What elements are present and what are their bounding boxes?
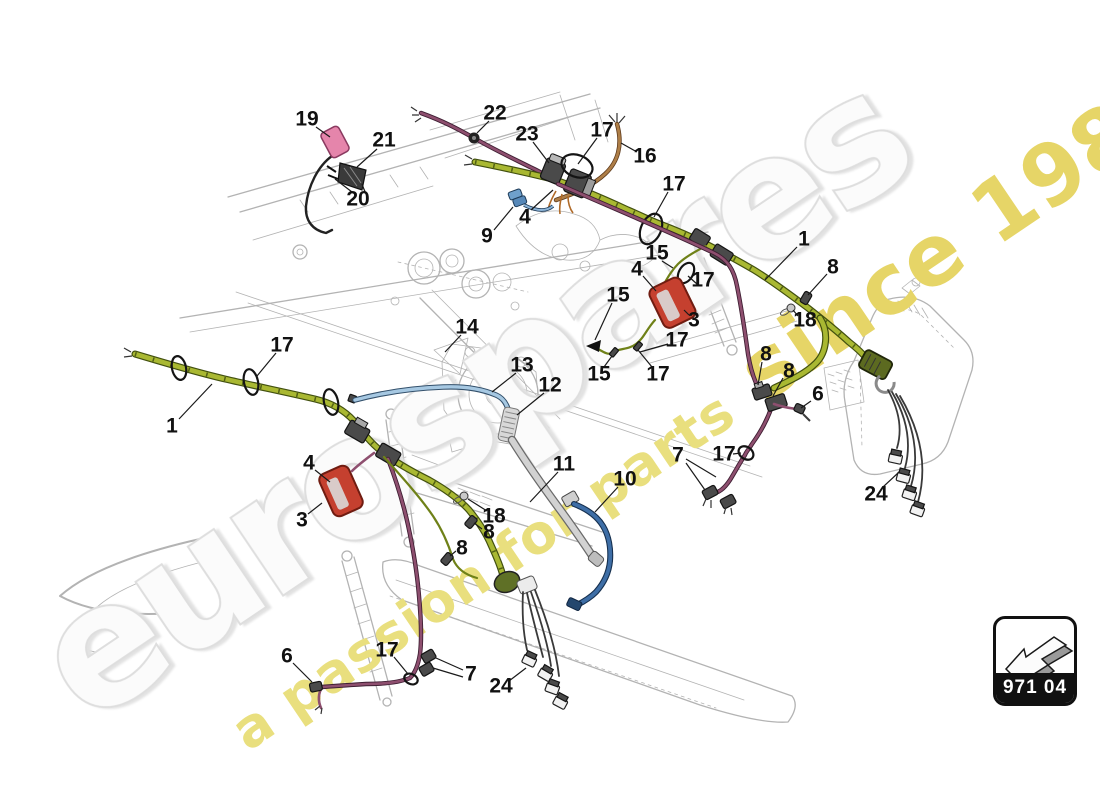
part-code-band: 971 04 <box>996 673 1074 703</box>
callout-15[interactable]: 15 <box>645 242 669 265</box>
callout-18[interactable]: 18 <box>793 309 817 332</box>
callout-17[interactable]: 17 <box>270 334 293 357</box>
callout-15[interactable]: 15 <box>606 284 630 307</box>
callout-8[interactable]: 8 <box>760 343 772 366</box>
callout-8[interactable]: 8 <box>483 521 495 544</box>
callout-19[interactable]: 19 <box>295 108 318 131</box>
callout-24[interactable]: 24 <box>864 483 888 506</box>
connector-7-b <box>720 494 737 509</box>
callout-leader-21 <box>357 149 377 167</box>
connector-7-a <box>702 485 719 500</box>
callout-17[interactable]: 17 <box>691 269 714 292</box>
callout-6[interactable]: 6 <box>281 645 293 668</box>
callout-4[interactable]: 4 <box>519 206 531 229</box>
callout-23[interactable]: 23 <box>515 123 538 146</box>
callout-4[interactable]: 4 <box>631 258 643 281</box>
connector-7-d <box>418 662 434 677</box>
callout-20[interactable]: 20 <box>346 188 369 211</box>
callout-leader-9 <box>494 207 513 230</box>
callout-6[interactable]: 6 <box>812 383 824 406</box>
callout-17[interactable]: 17 <box>712 443 735 466</box>
callout-12[interactable]: 12 <box>538 374 561 397</box>
parts-diagram: eurospares a passion for parts since 198… <box>0 0 1100 800</box>
connector-24-bottom-cluster <box>521 650 569 709</box>
callout-leader-7 <box>686 463 705 490</box>
sensor-6-bottom <box>309 681 323 692</box>
callout-14[interactable]: 14 <box>455 316 479 339</box>
callout-leader-7 <box>433 668 463 677</box>
blue-wire-10-tip <box>566 597 582 611</box>
callout-24[interactable]: 24 <box>489 675 513 698</box>
callout-17[interactable]: 17 <box>665 329 688 352</box>
callout-17[interactable]: 17 <box>375 639 398 662</box>
pink-cap-19 <box>320 125 351 159</box>
callout-1[interactable]: 1 <box>166 415 178 438</box>
callout-3[interactable]: 3 <box>688 309 700 332</box>
callout-11[interactable]: 11 <box>553 453 576 476</box>
callout-leader-7 <box>436 658 463 670</box>
part-code-badge[interactable]: 971 04 <box>993 616 1077 706</box>
callout-17[interactable]: 17 <box>590 119 613 142</box>
callout-13[interactable]: 13 <box>510 354 533 377</box>
callout-8[interactable]: 8 <box>827 256 839 279</box>
callout-leader-1 <box>179 384 212 419</box>
callout-7[interactable]: 7 <box>672 444 684 467</box>
callout-17[interactable]: 17 <box>646 363 669 386</box>
part-code: 971 04 <box>1003 677 1067 699</box>
callout-8[interactable]: 8 <box>456 537 468 560</box>
direction-arrow-icon <box>998 621 1076 677</box>
callout-3[interactable]: 3 <box>296 509 308 532</box>
callout-8[interactable]: 8 <box>783 360 795 383</box>
callout-9[interactable]: 9 <box>481 225 493 248</box>
callout-21[interactable]: 21 <box>372 129 396 152</box>
callout-7[interactable]: 7 <box>465 663 477 686</box>
connector-7-c <box>420 649 436 664</box>
callout-1[interactable]: 1 <box>798 228 810 251</box>
callout-4[interactable]: 4 <box>303 452 315 475</box>
callout-16[interactable]: 16 <box>633 145 656 168</box>
callout-15[interactable]: 15 <box>587 363 611 386</box>
diagram-canvas: eurospares a passion for parts since 198… <box>0 0 1100 800</box>
callout-17[interactable]: 17 <box>662 173 685 196</box>
callout-22[interactable]: 22 <box>483 102 506 125</box>
callout-10[interactable]: 10 <box>613 468 636 491</box>
